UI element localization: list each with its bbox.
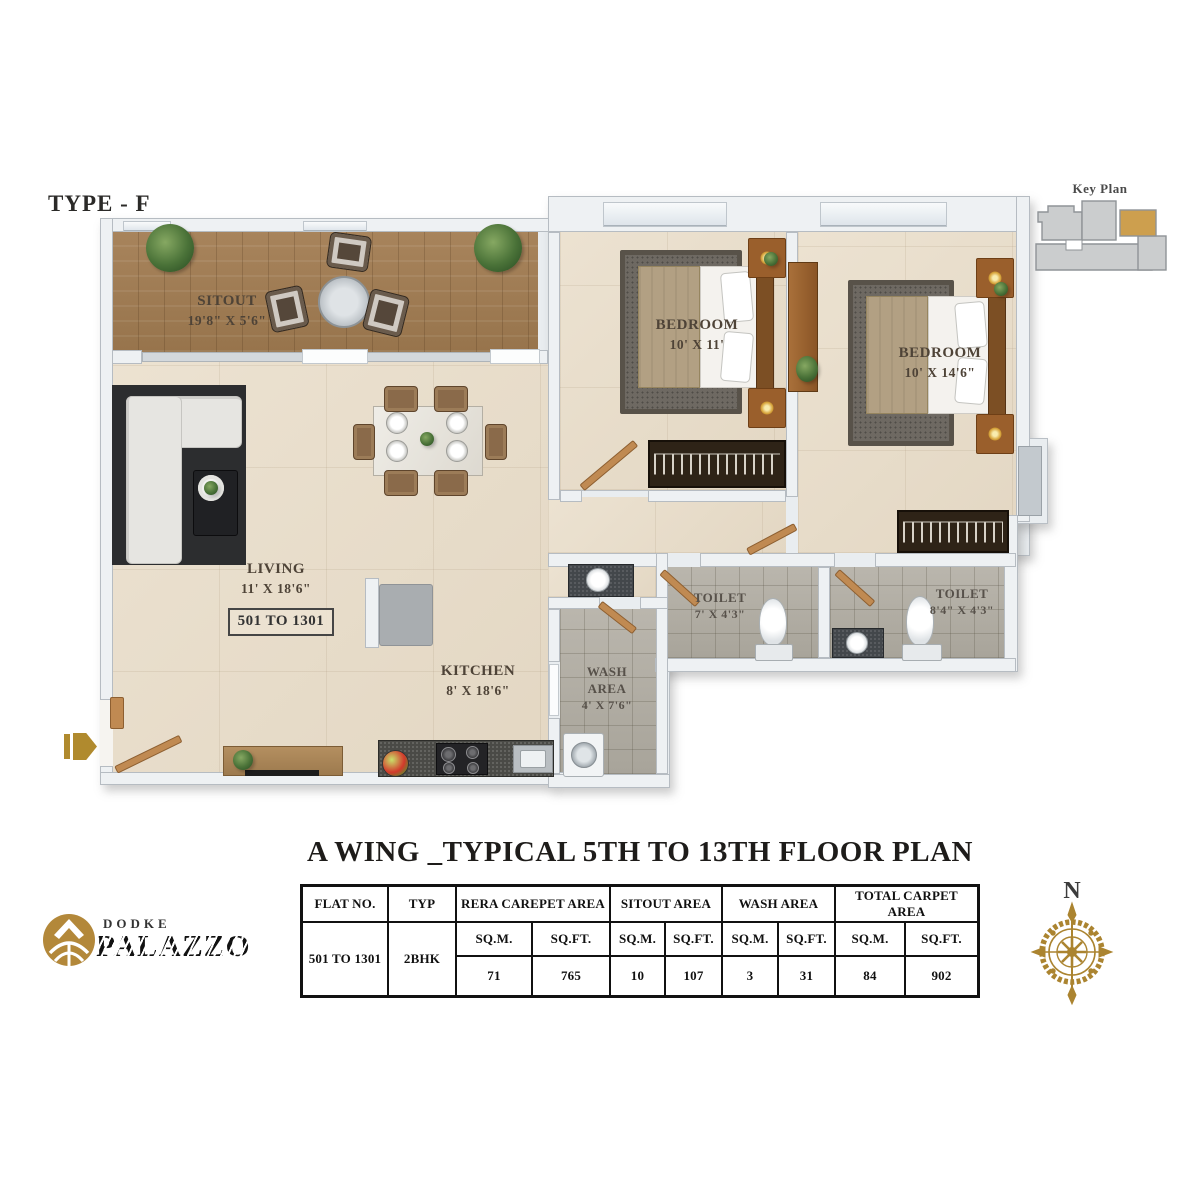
- bed2-blanket: [866, 296, 928, 414]
- wall-toilets-top-c: [875, 553, 1016, 567]
- wall-kitchen-wash-a: [548, 609, 560, 662]
- wall-wash-right: [656, 553, 668, 774]
- compass-rose-icon: N: [1028, 876, 1116, 1006]
- passage-floor: [548, 497, 786, 553]
- flat-range: 501 TO 1301: [238, 613, 325, 629]
- kitchen-sink-basin: [520, 750, 546, 768]
- dining-chair-right: [485, 424, 507, 460]
- flat-range-box: 501 TO 1301: [228, 608, 334, 636]
- toilet1-wc-bowl: [759, 598, 787, 646]
- key-plan-mid-block: [1082, 201, 1116, 240]
- bed1-headboard: [756, 260, 774, 392]
- cell-total-sqft: 902: [905, 956, 978, 996]
- cell-wash-sqft: 31: [778, 956, 835, 996]
- sitout-plant-right: [474, 224, 522, 272]
- key-plan-label: Key Plan: [1030, 181, 1170, 197]
- dining-plate-2: [446, 412, 468, 434]
- bedroom2-window: [820, 202, 947, 227]
- sofa-left-arm: [126, 396, 182, 564]
- wall-toilet-divider: [818, 567, 830, 658]
- entrance-arrow-head-icon: [73, 733, 97, 760]
- dining-chair-bottom-2: [434, 470, 468, 496]
- sliding-door-pier-left: [112, 350, 142, 364]
- duct-shaft: [1018, 446, 1042, 516]
- key-plan-right-block: [1138, 236, 1166, 270]
- toilet2-wc-tank: [902, 644, 942, 661]
- wall-wash-top-b: [640, 597, 668, 609]
- bed1-pillow-1: [720, 271, 754, 323]
- col-header-flat-no: FLAT NO.: [302, 886, 388, 922]
- bed2-headboard: [988, 290, 1006, 422]
- bedroom1-window: [603, 202, 727, 227]
- entrance-arrow-icon: [64, 734, 70, 759]
- wall-bedroom1-bottom-a: [560, 490, 582, 502]
- patio-table: [318, 276, 370, 328]
- unit-header-sqm: SQ.M.: [610, 922, 665, 956]
- bed1-blanket: [638, 266, 700, 388]
- lamp-icon: [761, 402, 774, 415]
- unit-header-sqft: SQ.FT.: [665, 922, 722, 956]
- washing-machine-door: [571, 742, 597, 768]
- dining-chair-left: [353, 424, 375, 460]
- brand-logo-icon: [42, 912, 96, 968]
- key-plan-left-block: [1038, 206, 1082, 240]
- brochure-page: TYPE - F: [0, 0, 1200, 1200]
- cell-typ: 2BHK: [388, 922, 456, 996]
- col-header-sitout-area: SITOUT AREA: [610, 886, 722, 922]
- compass-north-label: N: [1063, 878, 1081, 904]
- key-plan-map: [1030, 196, 1170, 288]
- unit-header-sqm: SQ.M.: [722, 922, 778, 956]
- tv-screen: [245, 770, 319, 776]
- col-header-wash-area: WASH AREA: [722, 886, 835, 922]
- tv-plant: [233, 750, 253, 770]
- wall-living-bedroom1: [548, 232, 560, 500]
- sitout-plant-left: [146, 224, 194, 272]
- bed2-pillow-2: [954, 357, 988, 405]
- bedroom2-wardrobe: [897, 510, 1009, 553]
- dining-centerpiece: [420, 432, 434, 446]
- hanger-rail: [654, 454, 780, 475]
- sliding-door-panel-2: [490, 349, 540, 364]
- bedroom2-plant-corner: [994, 282, 1008, 296]
- entrance-door-frame: [110, 697, 124, 729]
- dining-chair-top-2: [434, 386, 468, 412]
- key-plan-highlighted-unit: [1120, 210, 1156, 236]
- hanger-rail: [903, 521, 1003, 542]
- kitchen-partition-box: [379, 584, 433, 646]
- areas-table: FLAT NO. TYP RERA CAREPET AREA SITOUT AR…: [300, 884, 980, 998]
- coffee-table-plant: [204, 481, 218, 495]
- toilet1-wc-tank: [755, 644, 793, 661]
- toilet1-floor: [667, 567, 818, 658]
- bedroom1-plant: [764, 252, 778, 266]
- bedroom2-nightstand-bottom: [976, 414, 1014, 454]
- unit-header-sqm: SQ.M.: [835, 922, 905, 956]
- bedroom1-wardrobe: [648, 440, 786, 488]
- bedroom2-plant-floor: [796, 356, 818, 382]
- stove-burner-1: [441, 747, 456, 762]
- toilet2-basin-bowl: [846, 632, 868, 654]
- unit-header-sqm: SQ.M.: [456, 922, 532, 956]
- bed2-pillow-1: [954, 301, 988, 349]
- unit-header-sqft: SQ.FT.: [905, 922, 978, 956]
- kitchen-partition-pillar: [365, 578, 379, 648]
- dining-chair-top-1: [384, 386, 418, 412]
- cell-rera-sqft: 765: [532, 956, 610, 996]
- col-header-total-carpet-area: TOTAL CARPET AREA: [835, 886, 978, 922]
- dining-plate-1: [386, 412, 408, 434]
- bed1-pillow-2: [720, 331, 754, 383]
- cell-wash-sqm: 3: [722, 956, 778, 996]
- dining-plate-3: [386, 440, 408, 462]
- wall-toilets-top-b: [700, 553, 835, 567]
- sliding-door-panel-1: [302, 349, 368, 364]
- cell-flat-no: 501 TO 1301: [302, 922, 388, 996]
- stove-burner-4: [467, 762, 479, 774]
- key-plan-notch: [1066, 240, 1082, 250]
- col-header-typ: TYP: [388, 886, 456, 922]
- fruit-platter: [382, 750, 409, 777]
- stove-burner-3: [443, 762, 455, 774]
- sitout-window-2: [303, 221, 367, 232]
- wall-bedroom1-bottom-b: [648, 490, 786, 502]
- patio-chair-1: [326, 231, 373, 272]
- key-plan-bottom-bar: [1036, 244, 1152, 270]
- col-header-rera-carpet-area: RERA CAREPET AREA: [456, 886, 610, 922]
- dining-chair-bottom-1: [384, 470, 418, 496]
- page-title: A WING _TYPICAL 5TH TO 13TH FLOOR PLAN: [250, 836, 1030, 869]
- toilet2-wc-bowl: [906, 596, 934, 646]
- dining-plate-4: [446, 440, 468, 462]
- kitchen-wash-door-panel: [549, 664, 559, 716]
- brand-name-line2: PALAZZO: [96, 928, 251, 964]
- wall-bottom-toilets: [655, 658, 1016, 672]
- floor-plan: SITOUT 19'8" X 5'6" LIVING 11' X 18'6" 5…: [0, 0, 1200, 820]
- cell-rera-sqm: 71: [456, 956, 532, 996]
- bedroom1-nightstand-bottom: [748, 388, 786, 428]
- unit-header-sqft: SQ.FT.: [532, 922, 610, 956]
- cell-sitout-sqm: 10: [610, 956, 665, 996]
- lamp-icon: [989, 428, 1002, 441]
- cell-sitout-sqft: 107: [665, 956, 722, 996]
- basin-bowl: [586, 568, 610, 592]
- unit-header-sqft: SQ.FT.: [778, 922, 835, 956]
- wall-wash-top-a: [548, 597, 600, 609]
- stove-burner-2: [466, 746, 479, 759]
- cell-total-sqm: 84: [835, 956, 905, 996]
